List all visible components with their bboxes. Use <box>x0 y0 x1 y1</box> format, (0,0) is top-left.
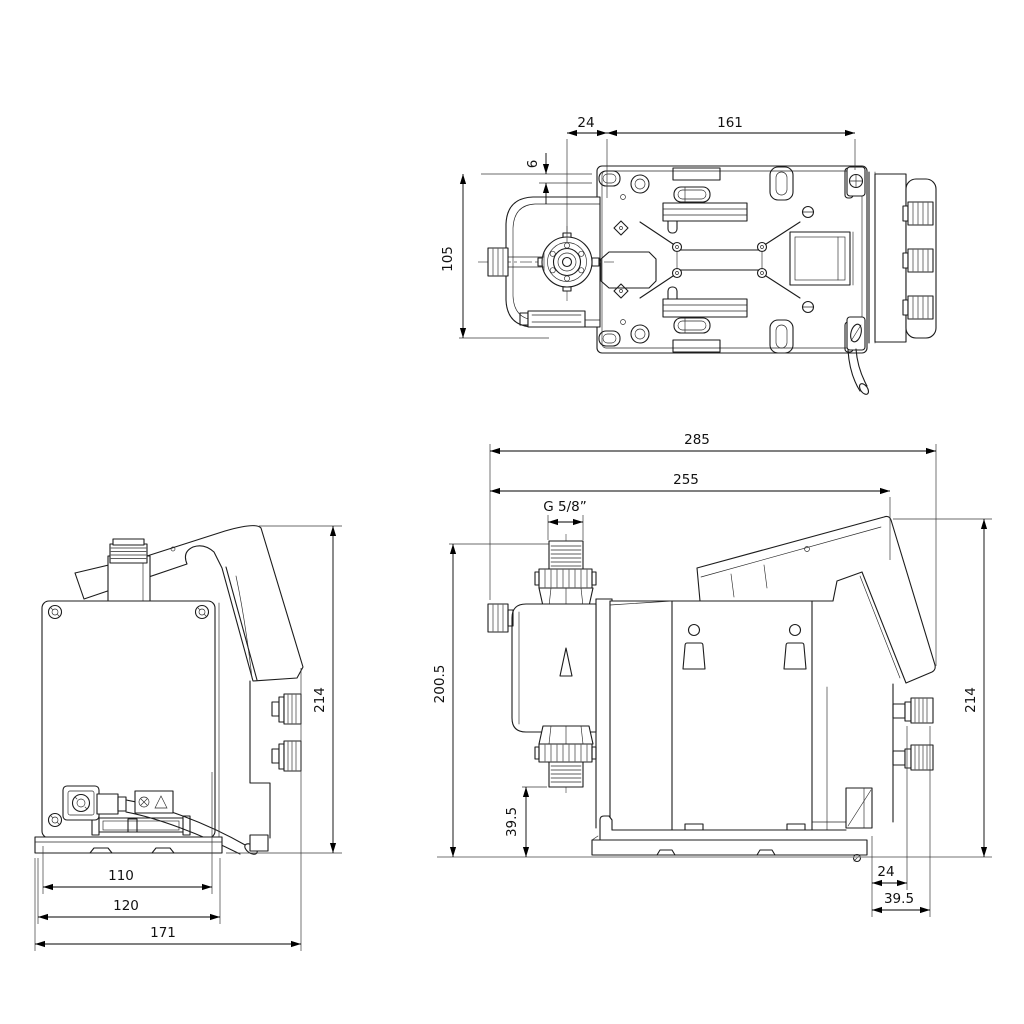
dim-label-side-clearance: 39.5 <box>504 807 520 837</box>
mounting-plate-top <box>597 166 867 353</box>
dim-label-side-knob-offset: 24 <box>877 864 894 880</box>
dimensional-drawing-canvas: 24 161 6 105 <box>0 0 1024 1024</box>
dim-label-top-width: 105 <box>440 246 456 272</box>
page-background <box>0 0 1024 1024</box>
connector-knob-top-3 <box>903 296 933 319</box>
connector-knob-top-1 <box>903 202 933 225</box>
warning-label-rear <box>135 791 173 813</box>
dim-label-side-knob-depth: 39.5 <box>884 891 914 907</box>
rear-foot-bracket-side <box>846 788 872 828</box>
dim-label-top-edge: 6 <box>525 160 541 169</box>
dim-label-top-offset: 24 <box>577 115 594 131</box>
dim-label-top-length: 161 <box>717 115 743 131</box>
dim-label-side-connector-height: 200.5 <box>432 665 448 704</box>
dim-label-side-thread: G 5/8” <box>543 499 586 515</box>
dim-label-rear-base-width: 120 <box>113 898 139 914</box>
dim-label-rear-depth: 171 <box>150 925 176 941</box>
dim-label-side-length: 255 <box>673 472 699 488</box>
connector-knob-top-2 <box>903 249 933 272</box>
vent-cap-rear <box>110 539 147 563</box>
dim-label-side-overall-length: 285 <box>684 432 710 448</box>
dim-label-rear-height: 214 <box>312 687 328 713</box>
dim-label-side-height: 214 <box>963 687 979 713</box>
dim-label-rear-inner-width: 110 <box>108 868 134 884</box>
